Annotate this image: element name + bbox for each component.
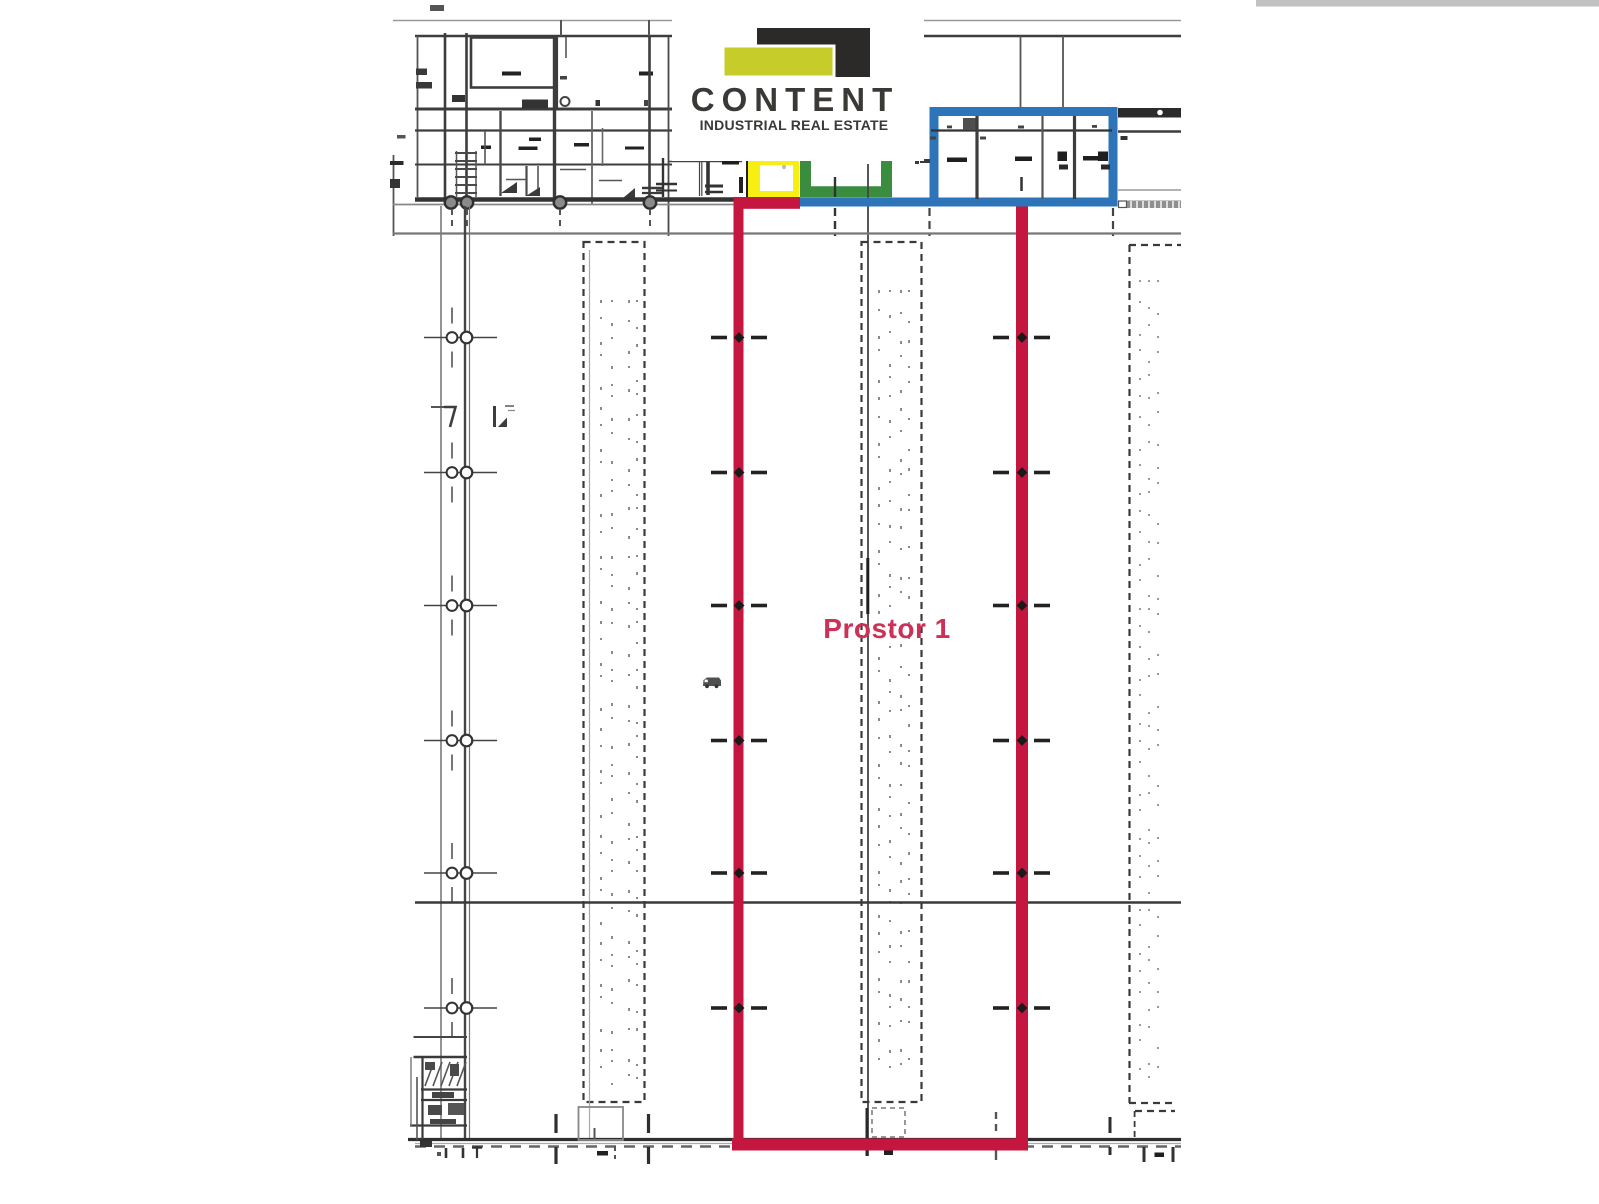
svg-text:Prostor 1: Prostor 1	[823, 613, 950, 644]
svg-text:CONTENT: CONTENT	[691, 81, 900, 118]
svg-text:INDUSTRIAL REAL ESTATE: INDUSTRIAL REAL ESTATE	[700, 117, 889, 133]
